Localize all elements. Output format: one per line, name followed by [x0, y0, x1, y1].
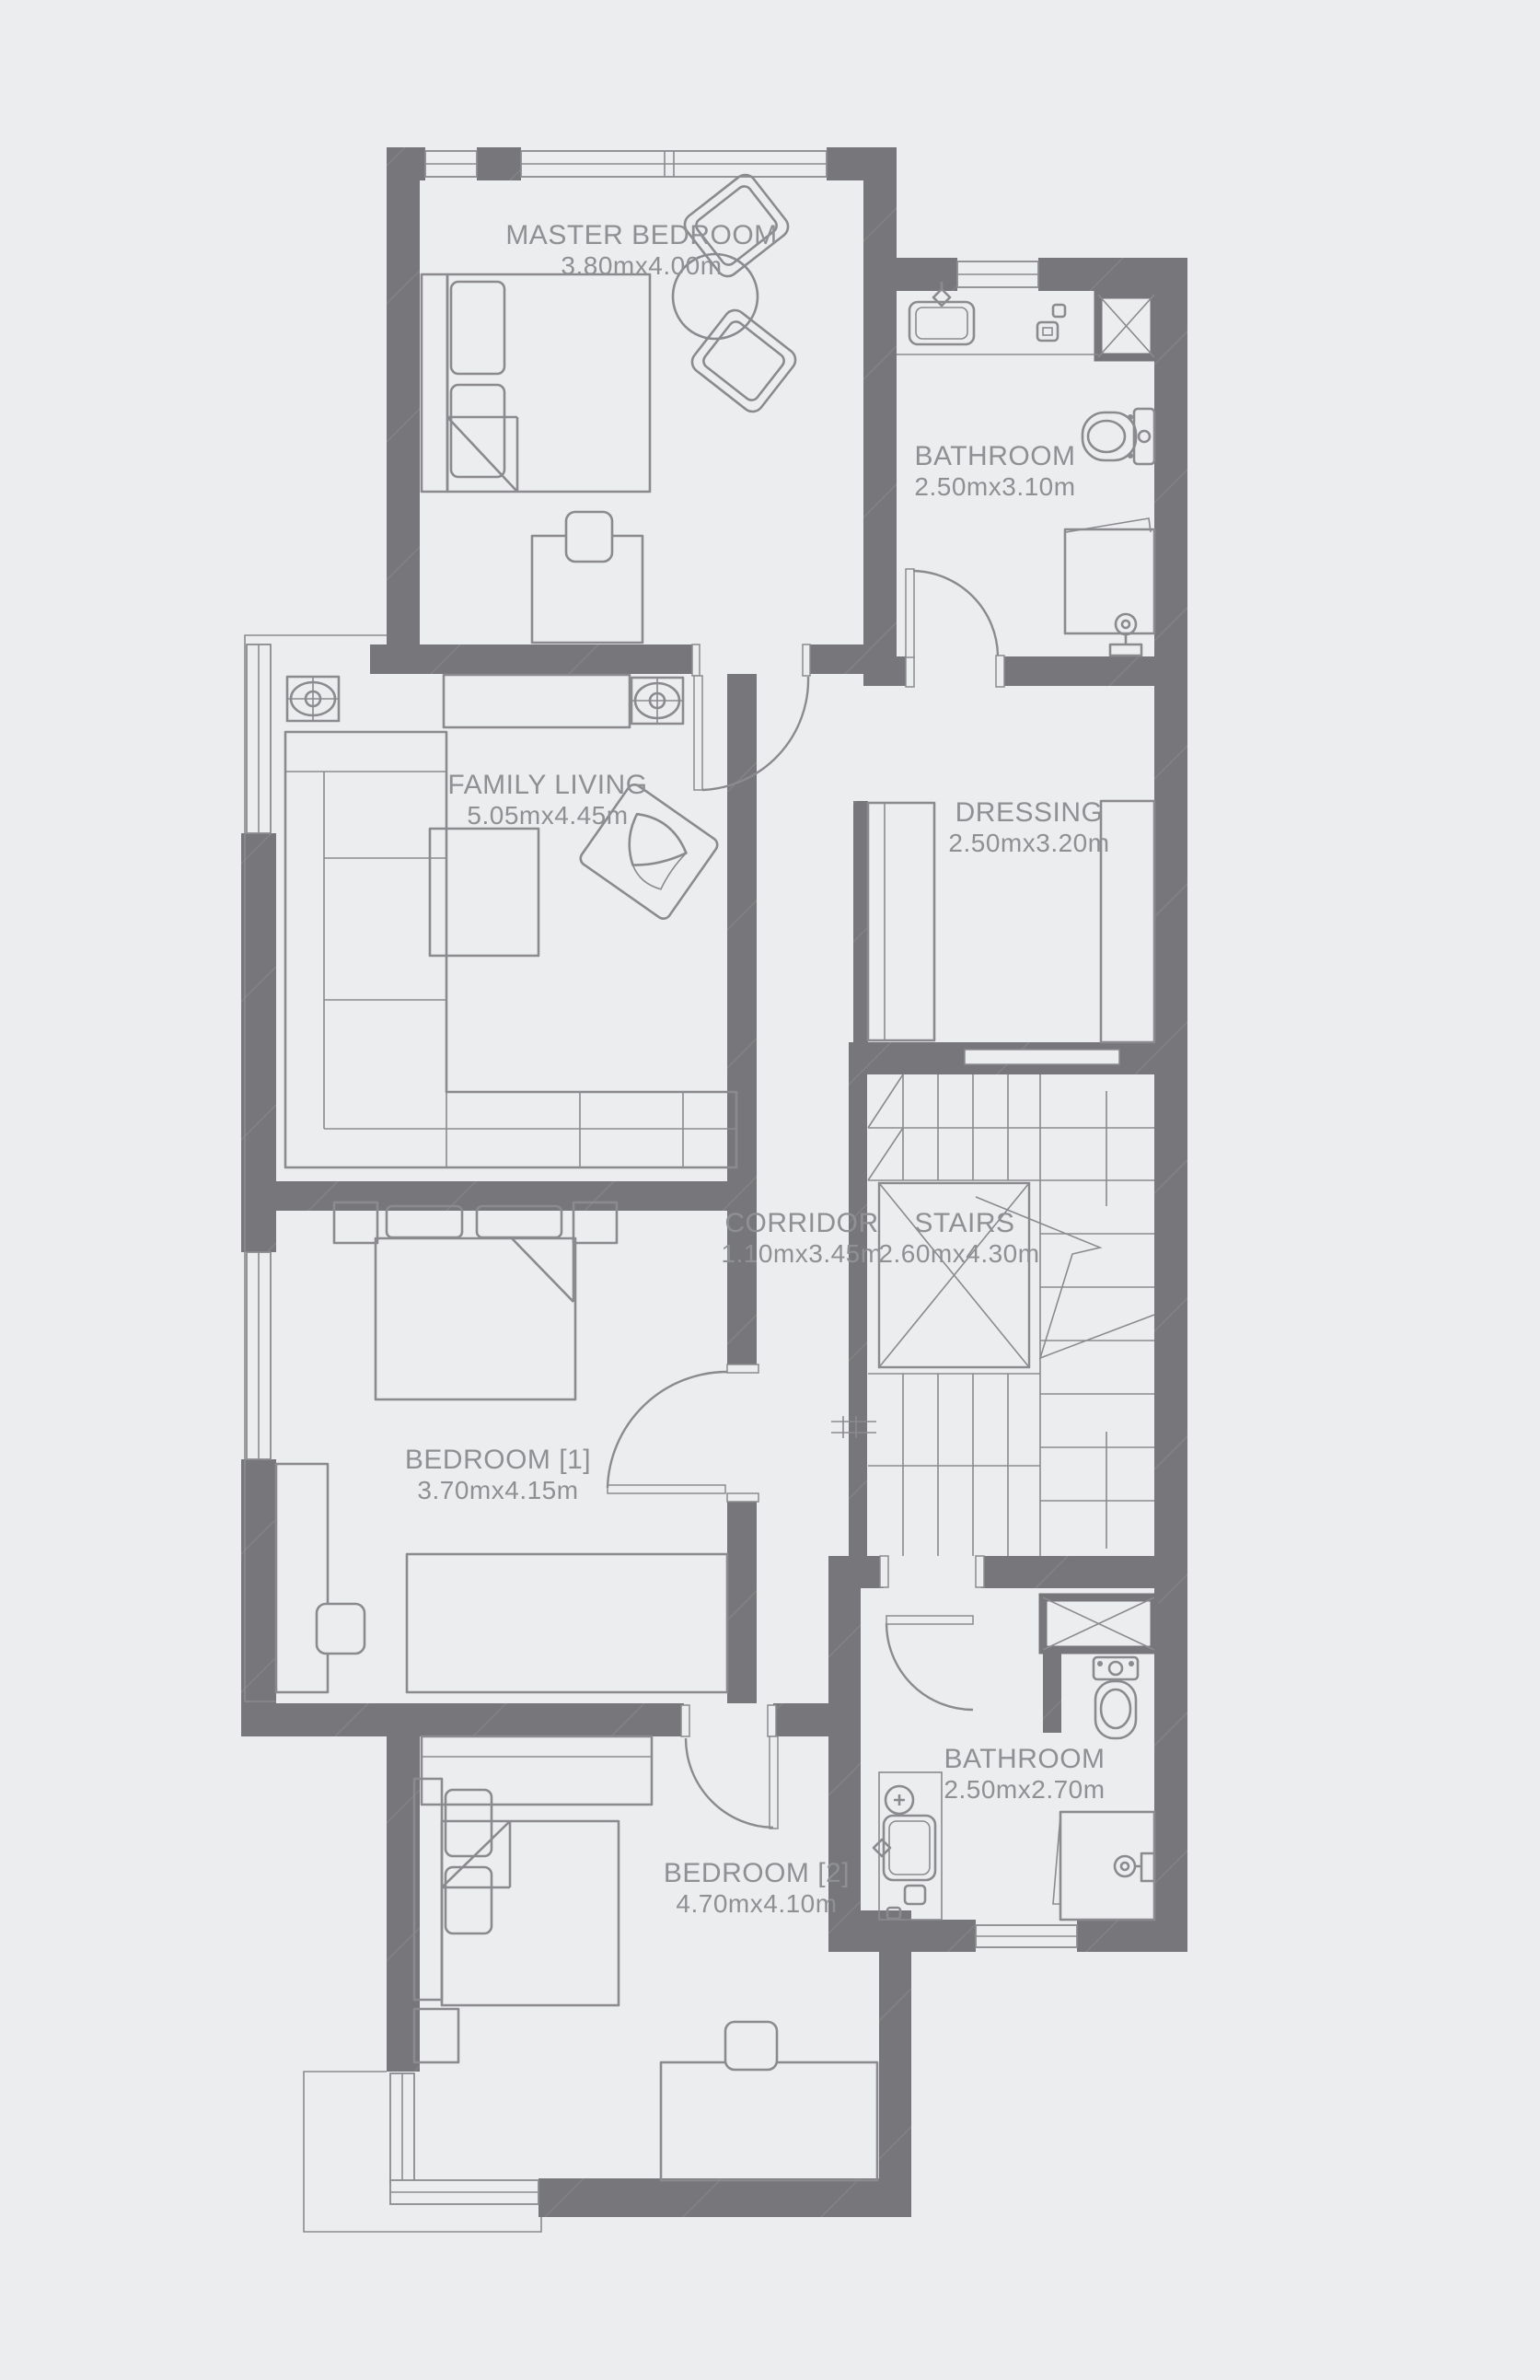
window-master-small	[425, 151, 477, 177]
toilet	[1094, 1657, 1138, 1738]
bed-fold	[442, 1821, 510, 1887]
desk-chair	[566, 512, 612, 562]
bedroom2-wardrobe	[422, 1736, 652, 1805]
speaker-icon	[287, 677, 339, 721]
label-bathroom-bottom: BATHROOM	[944, 1744, 1105, 1774]
nightstand	[414, 2009, 458, 2062]
master-chair-2	[688, 306, 800, 416]
bedroom2-chair	[725, 2022, 777, 2070]
door-bathroom-bottom	[880, 1556, 984, 1710]
dims-master-bedroom: 3.80mx4.00m	[561, 251, 722, 280]
door-bedroom2	[681, 1705, 778, 1829]
dims-bedroom2: 4.70mx4.10m	[676, 1889, 837, 1918]
door-bathroom-top	[906, 569, 1004, 687]
faucet-icon	[874, 1840, 890, 1856]
door-bedroom1	[608, 1364, 758, 1502]
window-bathroom-bottom	[976, 1925, 1077, 1947]
window-family-living	[247, 644, 271, 833]
duct-shaft-top	[1098, 295, 1154, 357]
shower	[1065, 518, 1154, 656]
label-master-bedroom: MASTER BEDROOM	[505, 220, 777, 250]
window-bedroom2-left	[390, 2073, 414, 2182]
master-desk	[532, 512, 643, 643]
dims-bathroom-top: 2.50mx3.10m	[914, 472, 1075, 501]
floor-plan-canvas: MASTER BEDROOM 3.80mx4.00m BATHROOM 2.50…	[0, 0, 1540, 2380]
bedroom1-chair	[317, 1604, 365, 1654]
shower-head-icon	[1115, 1856, 1135, 1876]
dims-family-living: 5.05mx4.45m	[467, 801, 628, 830]
bedroom2-furniture	[414, 1736, 877, 2180]
master-bed	[422, 274, 650, 492]
label-bedroom2: BEDROOM [2]	[664, 1858, 850, 1888]
accessories-icon	[1037, 305, 1065, 341]
bedroom1-bed	[334, 1202, 617, 1399]
label-bathroom-top: BATHROOM	[914, 441, 1075, 471]
floor-plan-svg: MASTER BEDROOM 3.80mx4.00m BATHROOM 2.50…	[0, 0, 1540, 2380]
dims-bathroom-bottom: 2.50mx2.70m	[944, 1775, 1105, 1804]
sink	[909, 282, 974, 344]
bed-fold	[447, 417, 517, 492]
dims-bedroom1: 3.70mx4.15m	[417, 1476, 578, 1504]
shower	[1053, 1812, 1154, 1920]
bedroom1-dresser	[407, 1554, 727, 1692]
bedroom2-bed	[414, 1779, 619, 2062]
threshold	[965, 1050, 1119, 1064]
label-corridor: CORRIDOR	[724, 1208, 878, 1238]
toilet	[1083, 409, 1154, 464]
bed-fold	[512, 1238, 573, 1302]
tv-console	[444, 675, 630, 727]
bedroom2-desk	[661, 2062, 877, 2180]
bedroom1-desk	[276, 1464, 328, 1692]
label-dressing: DRESSING	[955, 797, 1104, 828]
family-living-furniture	[285, 675, 736, 1167]
dims-corridor: 1.10mx3.45m	[721, 1239, 882, 1268]
window-master-large	[521, 151, 827, 177]
label-bedroom1: BEDROOM [1]	[405, 1445, 591, 1475]
sink	[884, 1816, 935, 1880]
window-bedroom2-bottom	[390, 2180, 538, 2204]
shower-head-icon	[1116, 614, 1136, 634]
label-stairs: STAIRS	[914, 1208, 1014, 1238]
dims-dressing: 2.50mx3.20m	[948, 829, 1109, 857]
vanity	[874, 1772, 942, 1920]
speaker-icon-2	[631, 678, 683, 724]
dims-stairs: 2.60mx4.30m	[878, 1239, 1039, 1268]
label-family-living: FAMILY LIVING	[447, 770, 647, 800]
stairs	[831, 1074, 1154, 1556]
window-bathroom-top	[957, 261, 1038, 287]
window-bedroom1	[247, 1252, 271, 1459]
